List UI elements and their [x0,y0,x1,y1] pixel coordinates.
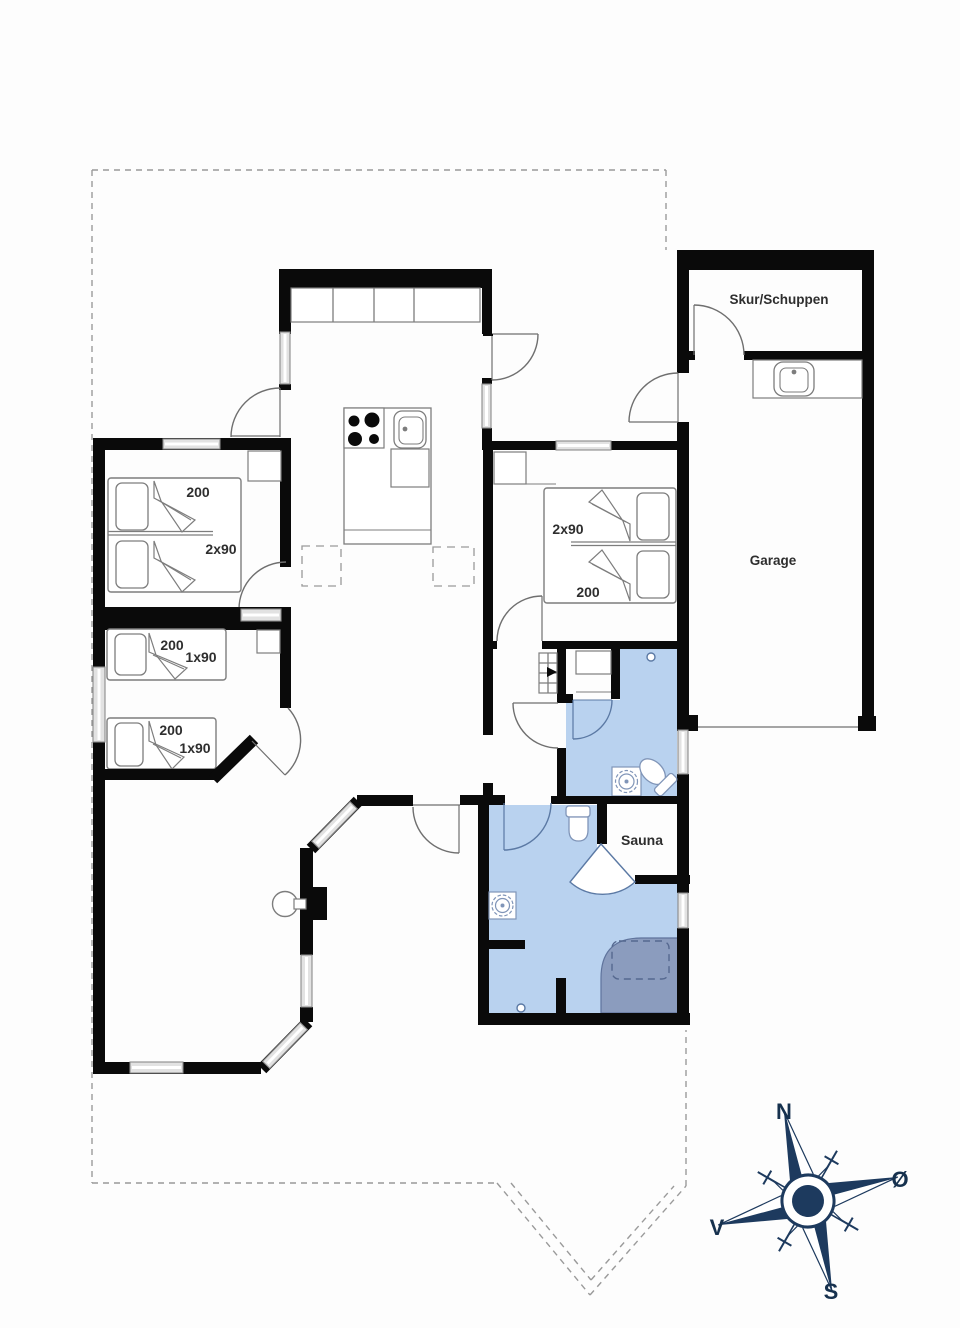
svg-text:200: 200 [576,584,600,600]
svg-text:Skur/Schuppen: Skur/Schuppen [729,292,828,307]
svg-text:1x90: 1x90 [185,649,216,665]
svg-text:1x90: 1x90 [179,740,210,756]
svg-text:Sauna: Sauna [621,832,663,848]
svg-text:2x90: 2x90 [205,541,236,557]
svg-text:N: N [776,1099,792,1124]
svg-text:200: 200 [159,722,183,738]
svg-text:200: 200 [186,484,210,500]
svg-text:V: V [710,1215,725,1240]
svg-text:200: 200 [160,637,184,653]
svg-text:2x90: 2x90 [552,521,583,537]
svg-text:Garage: Garage [750,553,797,568]
svg-text:S: S [824,1279,839,1304]
svg-text:Ø: Ø [891,1167,908,1192]
